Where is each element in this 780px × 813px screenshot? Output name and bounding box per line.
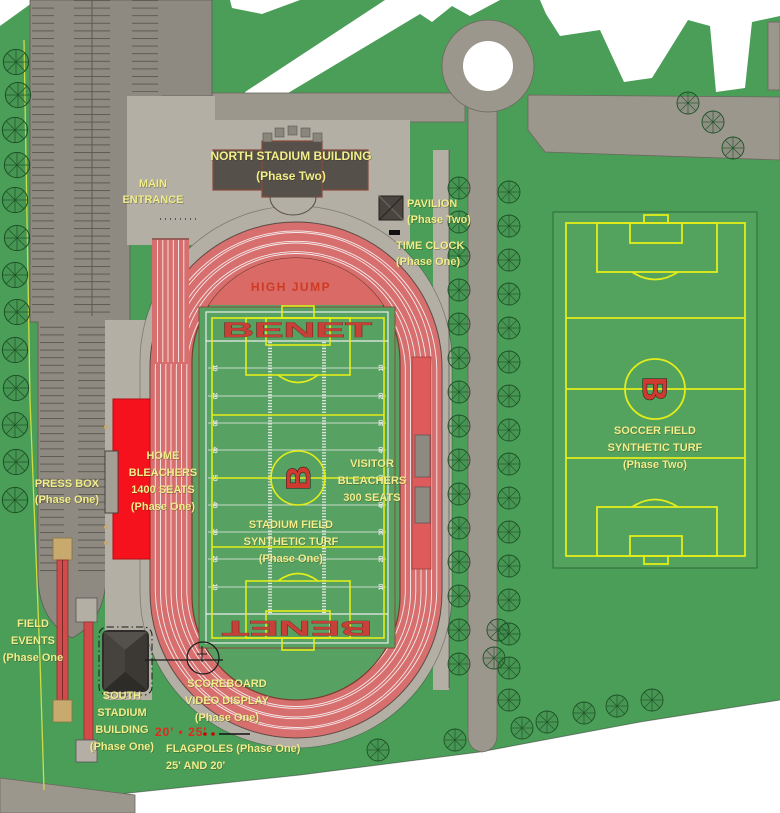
- press-box-structure: [105, 451, 118, 513]
- label-south-stadium-building: SOUTH STADIUM BUILDING (Phase One): [90, 688, 154, 756]
- endzone-team-name-north: BENET: [222, 319, 372, 342]
- site-plan: 10 20 30 40 50 40 30 20 10 10 20 30 40 5…: [0, 0, 780, 813]
- label-north-stadium-building: NORTH STADIUM BUILDING (Phase Two): [210, 146, 371, 187]
- label-flagpoles: FLAGPOLES (Phase One) 25' AND 20': [166, 741, 300, 775]
- label-stadium-field: STADIUM FIELD SYNTHETIC TURF (Phase One): [244, 517, 339, 568]
- pavilion: [379, 196, 403, 220]
- visitor-bleachers: [412, 357, 431, 569]
- midfield-logo: B: [280, 466, 318, 491]
- south-stadium-building: [99, 627, 152, 695]
- label-main-entrance: MAIN ENTRANCE: [122, 177, 183, 209]
- label-flagpole-heights: 20' • 25': [155, 724, 207, 741]
- label-scoreboard: SCOREBOARD VIDEO DISPLAY (Phase One): [185, 676, 269, 727]
- label-visitor-bleachers: VISITOR BLEACHERS 300 SEATS: [338, 456, 406, 507]
- endzone-team-name-south: BENET: [222, 616, 372, 639]
- label-field-events: FIELD EVENTS (Phase One: [3, 616, 64, 667]
- label-home-bleachers: HOME BLEACHERS 1400 SEATS (Phase One): [129, 448, 197, 516]
- soccer-field: B: [553, 212, 757, 568]
- soccer-center-logo: B: [635, 377, 673, 402]
- label-soccer-field: SOCCER FIELD SYNTHETIC TURF (Phase Two): [608, 423, 703, 474]
- label-press-box: PRESS BOX (Phase One): [35, 477, 99, 509]
- label-pavilion: PAVILION (Phase Two): [407, 197, 471, 229]
- roundabout-island: [463, 41, 513, 91]
- label-time-clock: TIME CLOCK (Phase One): [396, 239, 464, 271]
- sprint-chute: [152, 238, 189, 364]
- label-high-jump: HIGH JUMP: [251, 279, 331, 296]
- time-clock-marker: [389, 230, 400, 235]
